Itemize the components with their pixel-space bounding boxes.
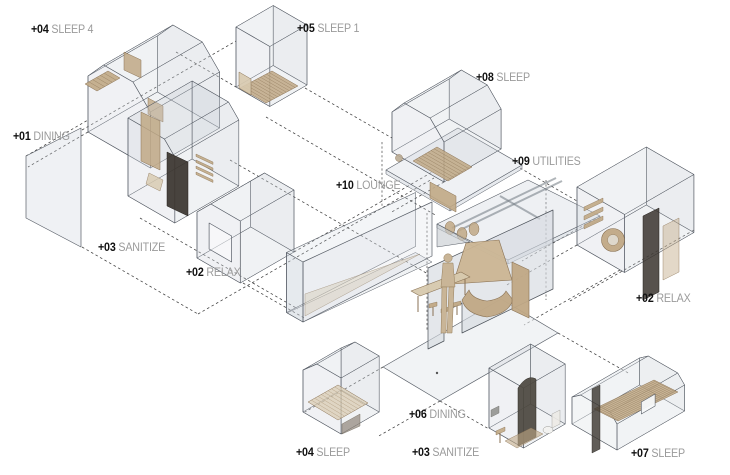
label-04-sleep-bottom: +04 SLEEP <box>296 448 350 459</box>
label-number: +03 <box>412 447 430 459</box>
label-number: +02 <box>186 267 204 279</box>
label-03-sanitize-bottom: +03 SANITIZE <box>412 448 479 459</box>
label-number: +03 <box>98 242 116 254</box>
label-name: SANITIZE <box>118 242 165 254</box>
label-number: +09 <box>512 156 530 168</box>
label-06-dining: +06 DINING <box>409 410 466 421</box>
label-name: SLEEP <box>651 448 685 460</box>
chair-seat <box>608 235 619 246</box>
label-number: +02 <box>636 293 654 305</box>
label-number: +04 <box>296 447 314 459</box>
label-02-relax-left: +02 RELAX <box>186 268 241 279</box>
label-number: +01 <box>13 131 31 143</box>
label-name: SLEEP <box>496 72 530 84</box>
toilet <box>543 427 553 434</box>
label-name: SLEEP <box>316 447 350 459</box>
label-name: SANITIZE <box>432 447 479 459</box>
label-number: +07 <box>631 448 649 460</box>
label-05-sleep1: +05 SLEEP 1 <box>297 24 359 35</box>
figure-torso <box>441 263 455 287</box>
label-04-sleep4: +04 SLEEP 4 <box>31 25 93 36</box>
lounge-end-cap <box>287 253 304 323</box>
floor-drain <box>436 372 438 374</box>
label-number: +08 <box>476 72 494 84</box>
wardrobe <box>141 112 160 170</box>
media-panel <box>643 208 659 300</box>
label-07-sleep: +07 SLEEP <box>631 449 685 460</box>
figure-head <box>444 254 452 262</box>
label-03-sanitize-upper: +03 SANITIZE <box>98 243 165 254</box>
side-cabinet <box>663 218 679 280</box>
diagram-stage: +04 SLEEP 4 +05 SLEEP 1 +08 SLEEP +01 DI… <box>0 0 730 475</box>
label-name: RELAX <box>206 267 240 279</box>
label-name: SLEEP 1 <box>317 23 359 35</box>
figure-leg <box>441 287 447 333</box>
end-panel <box>592 385 600 453</box>
banquette-back <box>512 262 529 318</box>
module-01-dining-panel <box>26 128 81 247</box>
dashed-line <box>558 333 630 374</box>
label-02-relax-right: +02 RELAX <box>636 294 691 305</box>
canister <box>469 223 479 236</box>
dashed-line <box>82 247 198 314</box>
label-10-lounge: +10 LOUNGE <box>336 181 400 192</box>
label-number: +10 <box>336 180 354 192</box>
label-name: DINING <box>429 409 465 421</box>
label-number: +05 <box>297 23 315 35</box>
axonometric-diagram <box>0 0 730 475</box>
label-number: +06 <box>409 409 427 421</box>
label-name: RELAX <box>656 293 690 305</box>
module-10-lounge <box>287 193 433 323</box>
dashed-line <box>305 88 392 138</box>
label-name: SLEEP 4 <box>51 24 93 36</box>
label-name: DINING <box>33 131 69 143</box>
label-name: UTILITIES <box>532 156 580 168</box>
label-09-utilities: +09 UTILITIES <box>512 157 581 168</box>
porthole <box>396 155 403 162</box>
label-number: +04 <box>31 24 49 36</box>
door-panel <box>167 152 188 216</box>
label-01-dining: +01 DINING <box>13 132 70 143</box>
label-08-sleep: +08 SLEEP <box>476 73 530 84</box>
label-name: LOUNGE <box>356 180 400 192</box>
